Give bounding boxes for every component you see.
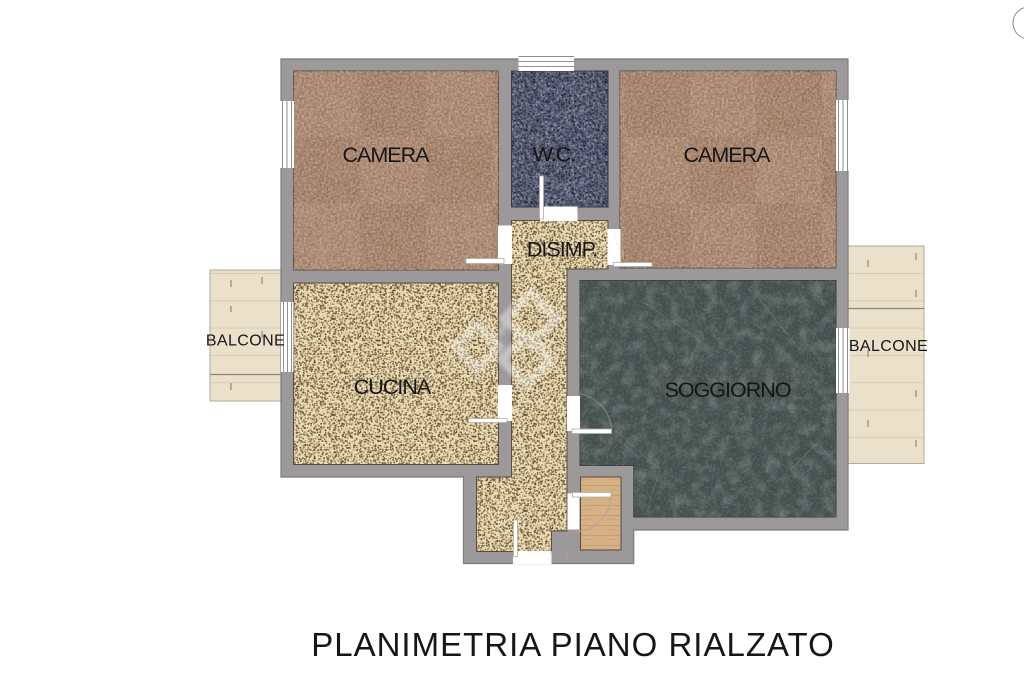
svg-text:CUCINA: CUCINA [354, 375, 432, 399]
svg-text:SOGGIORNO: SOGGIORNO [665, 378, 791, 402]
svg-text:PLANIMETRIA PIANO RIALZATO: PLANIMETRIA PIANO RIALZATO [311, 626, 835, 663]
svg-text:BALCONE: BALCONE [206, 333, 285, 350]
svg-text:CAMERA: CAMERA [684, 143, 772, 167]
svg-text:DISIMP.: DISIMP. [527, 238, 597, 262]
svg-text:CAMERA: CAMERA [343, 143, 431, 167]
svg-text:BALCONE: BALCONE [849, 338, 928, 355]
svg-text:W.C.: W.C. [533, 143, 576, 167]
